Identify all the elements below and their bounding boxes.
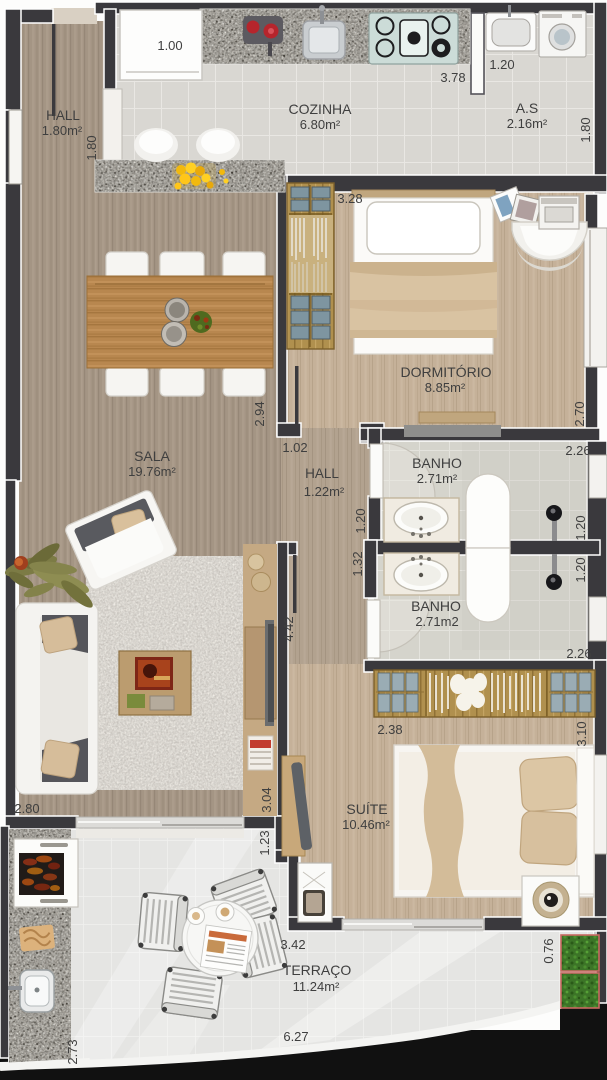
svg-text:0.76: 0.76 — [541, 938, 556, 963]
svg-text:3.42: 3.42 — [280, 937, 305, 952]
svg-text:1.22m²: 1.22m² — [304, 484, 345, 499]
svg-text:3.28: 3.28 — [337, 191, 362, 206]
svg-text:2.73: 2.73 — [65, 1039, 80, 1064]
svg-text:SALA: SALA — [134, 448, 170, 464]
svg-text:2.16m²: 2.16m² — [507, 116, 548, 131]
svg-text:TERRAÇO: TERRAÇO — [283, 962, 352, 978]
svg-text:2.70: 2.70 — [572, 401, 587, 426]
svg-text:HALL: HALL — [305, 466, 339, 481]
svg-text:1.20: 1.20 — [573, 557, 588, 582]
svg-text:BANHO: BANHO — [411, 598, 461, 614]
svg-text:19.76m²: 19.76m² — [128, 464, 176, 479]
svg-text:1.20: 1.20 — [353, 508, 368, 533]
svg-text:8.85m²: 8.85m² — [425, 380, 466, 395]
svg-text:HALL: HALL — [46, 108, 80, 123]
svg-text:1.32: 1.32 — [350, 551, 365, 576]
svg-text:2.71m2: 2.71m2 — [415, 614, 458, 629]
svg-text:1.80m²: 1.80m² — [42, 123, 83, 138]
svg-text:2.80: 2.80 — [14, 801, 39, 816]
svg-text:1.20: 1.20 — [573, 515, 588, 540]
svg-text:4.42: 4.42 — [281, 616, 296, 641]
svg-text:BANHO: BANHO — [412, 455, 462, 471]
svg-text:1.23: 1.23 — [257, 830, 272, 855]
svg-text:1.20: 1.20 — [489, 57, 514, 72]
svg-text:3.78: 3.78 — [440, 70, 465, 85]
svg-text:6.80m²: 6.80m² — [300, 117, 341, 132]
svg-text:2.26: 2.26 — [566, 646, 591, 661]
svg-text:11.24m²: 11.24m² — [293, 979, 340, 994]
svg-text:2.94: 2.94 — [252, 401, 267, 426]
svg-text:2.71m²: 2.71m² — [417, 471, 458, 486]
svg-text:10.46m²: 10.46m² — [342, 817, 390, 832]
svg-text:2.26: 2.26 — [565, 443, 590, 458]
svg-text:1.02: 1.02 — [282, 440, 307, 455]
svg-text:1.80: 1.80 — [84, 135, 99, 160]
svg-text:1.80: 1.80 — [578, 117, 593, 142]
svg-text:3.04: 3.04 — [259, 787, 274, 812]
svg-text:COZINHA: COZINHA — [289, 101, 353, 117]
svg-text:A.S: A.S — [516, 100, 539, 116]
svg-text:2.38: 2.38 — [377, 722, 402, 737]
svg-text:6.27: 6.27 — [283, 1029, 308, 1044]
svg-text:3.10: 3.10 — [574, 721, 589, 746]
svg-text:SUÍTE: SUÍTE — [346, 801, 387, 817]
svg-text:1.00: 1.00 — [157, 38, 182, 53]
svg-text:DORMITÓRIO: DORMITÓRIO — [401, 364, 492, 380]
